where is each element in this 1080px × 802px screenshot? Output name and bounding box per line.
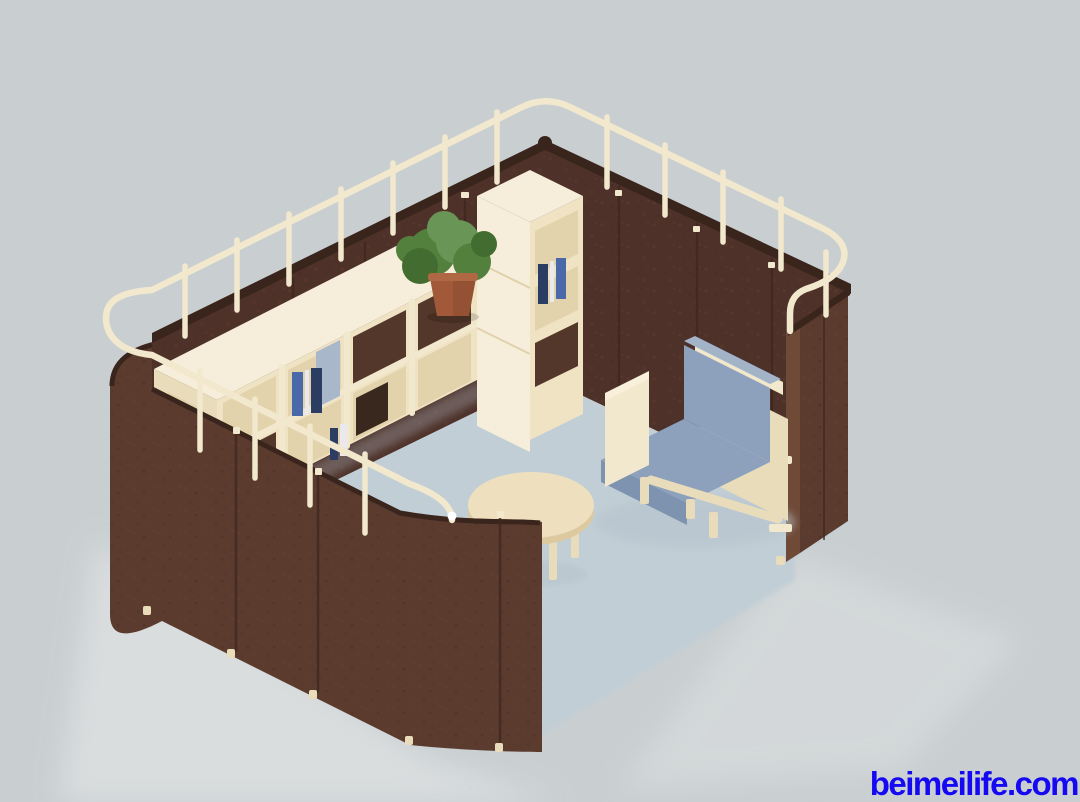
bookshelf-tower <box>477 170 583 452</box>
back-corner-cap <box>538 136 552 150</box>
railing-end-cap <box>448 512 457 521</box>
panel-connector-peg <box>461 192 469 198</box>
watermark-text: beimeilife.com <box>870 765 1078 802</box>
plant-pot-rim <box>428 273 478 281</box>
right-wall-foot <box>776 556 785 565</box>
isometric-room-illustration: beimeilife.com <box>0 0 1080 802</box>
scene-canvas: beimeilife.com <box>0 0 1080 802</box>
panel-connector-peg <box>769 524 792 532</box>
